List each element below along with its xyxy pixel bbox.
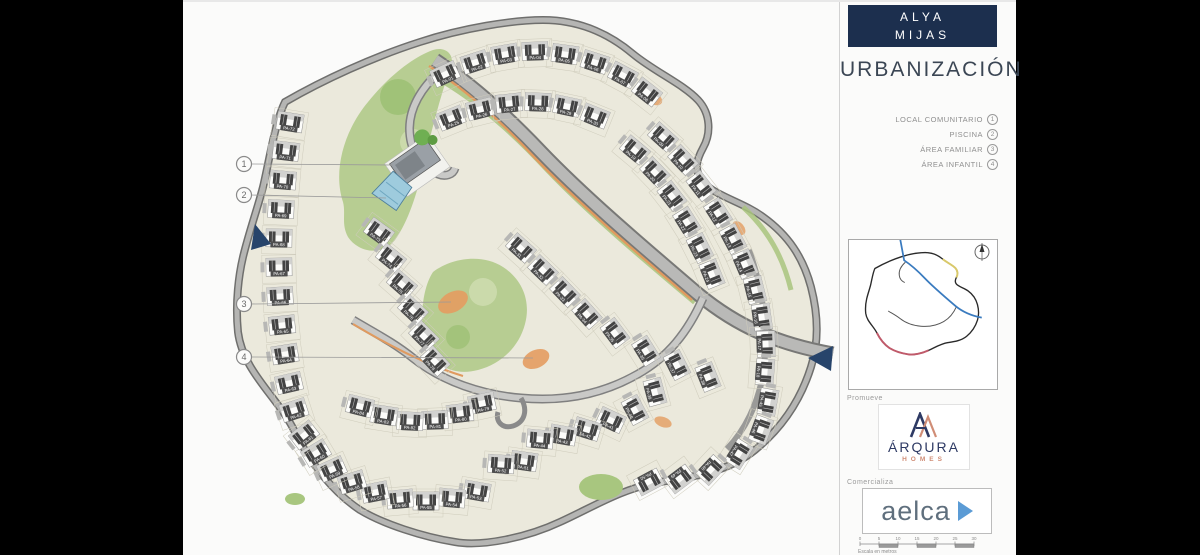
svg-text:PA-17: PA-17: [757, 338, 762, 350]
marketer-logo: aelca: [862, 488, 992, 534]
arqura-monogram-icon: [907, 412, 941, 438]
scale-bar: 051015202530: [856, 535, 986, 549]
svg-text:PA-44: PA-44: [533, 443, 546, 449]
svg-text:30: 30: [971, 536, 977, 541]
screenshot-stage: PA-01PA-02PA-03PA-04PA-05PA-06PA-07PA-08…: [0, 0, 1200, 555]
svg-text:PA-55: PA-55: [420, 505, 432, 510]
legend-item-number: 3: [987, 144, 998, 155]
project-name-line2: MIJAS: [848, 28, 997, 42]
legend-item-number: 4: [987, 159, 998, 170]
plan-sheet: PA-01PA-02PA-03PA-04PA-05PA-06PA-07PA-08…: [183, 0, 1016, 555]
svg-text:5: 5: [878, 536, 881, 541]
legend-item-label: ÁREA FAMILIAR: [920, 145, 983, 154]
legend: LOCAL COMUNITARIO1PISCINA2ÁREA FAMILIAR3…: [895, 114, 998, 170]
svg-text:PA-56: PA-56: [395, 503, 408, 509]
project-name-line1: ALYA: [848, 10, 997, 24]
svg-text:2: 2: [241, 190, 246, 200]
svg-text:20: 20: [933, 536, 939, 541]
promoter-name: ÁRQURA: [888, 439, 960, 455]
svg-text:PA-68: PA-68: [273, 242, 285, 247]
scale-caption: Escala en metros: [858, 549, 897, 555]
legend-item: ÁREA FAMILIAR3: [920, 144, 998, 155]
legend-item: PISCINA2: [949, 129, 998, 140]
promoter-logo: ÁRQURA HOMES: [878, 404, 970, 470]
svg-text:1: 1: [241, 159, 246, 169]
site-plan: PA-01PA-02PA-03PA-04PA-05PA-06PA-07PA-08…: [183, 2, 840, 555]
legend-item-label: PISCINA: [949, 130, 983, 139]
sidebar: ALYA MIJAS URBANIZACIÓN LOCAL COMUNITARI…: [840, 2, 1016, 555]
svg-text:PA-67: PA-67: [273, 271, 285, 276]
svg-text:PA-66: PA-66: [274, 300, 286, 306]
svg-text:PA-18: PA-18: [755, 366, 761, 379]
marketer-label: Comercializa: [847, 479, 893, 486]
page-title: URBANIZACIÓN: [840, 58, 1005, 82]
aelca-triangle-icon: [958, 501, 973, 521]
svg-text:10: 10: [895, 536, 901, 541]
svg-text:3: 3: [241, 299, 246, 309]
legend-item-label: ÁREA INFANTIL: [921, 160, 983, 169]
svg-text:4: 4: [241, 352, 246, 362]
promoter-label: Promueve: [847, 395, 883, 402]
minimap: [848, 239, 998, 390]
svg-text:15: 15: [914, 536, 920, 541]
svg-text:PA-52: PA-52: [495, 468, 508, 474]
svg-text:PA-28: PA-28: [532, 106, 544, 111]
promoter-subname: HOMES: [902, 456, 946, 463]
svg-text:0: 0: [859, 536, 862, 541]
project-title-box: ALYA MIJAS: [848, 5, 997, 47]
svg-text:PA-70: PA-70: [276, 184, 289, 190]
svg-text:PA-04: PA-04: [529, 55, 541, 60]
north-compass-icon: [975, 243, 989, 261]
svg-text:PA-69: PA-69: [275, 213, 287, 219]
svg-text:25: 25: [952, 536, 958, 541]
marketer-name: aelca: [881, 496, 951, 527]
svg-text:PA-82: PA-82: [404, 425, 416, 431]
svg-text:PA-81: PA-81: [429, 424, 441, 429]
legend-item-number: 2: [987, 129, 998, 140]
minimap-drawing: [849, 240, 995, 387]
svg-text:PA-54: PA-54: [445, 502, 458, 508]
legend-item: ÁREA INFANTIL4: [921, 159, 998, 170]
legend-item: LOCAL COMUNITARIO1: [895, 114, 998, 125]
legend-item-number: 1: [987, 114, 998, 125]
legend-item-label: LOCAL COMUNITARIO: [895, 115, 983, 124]
